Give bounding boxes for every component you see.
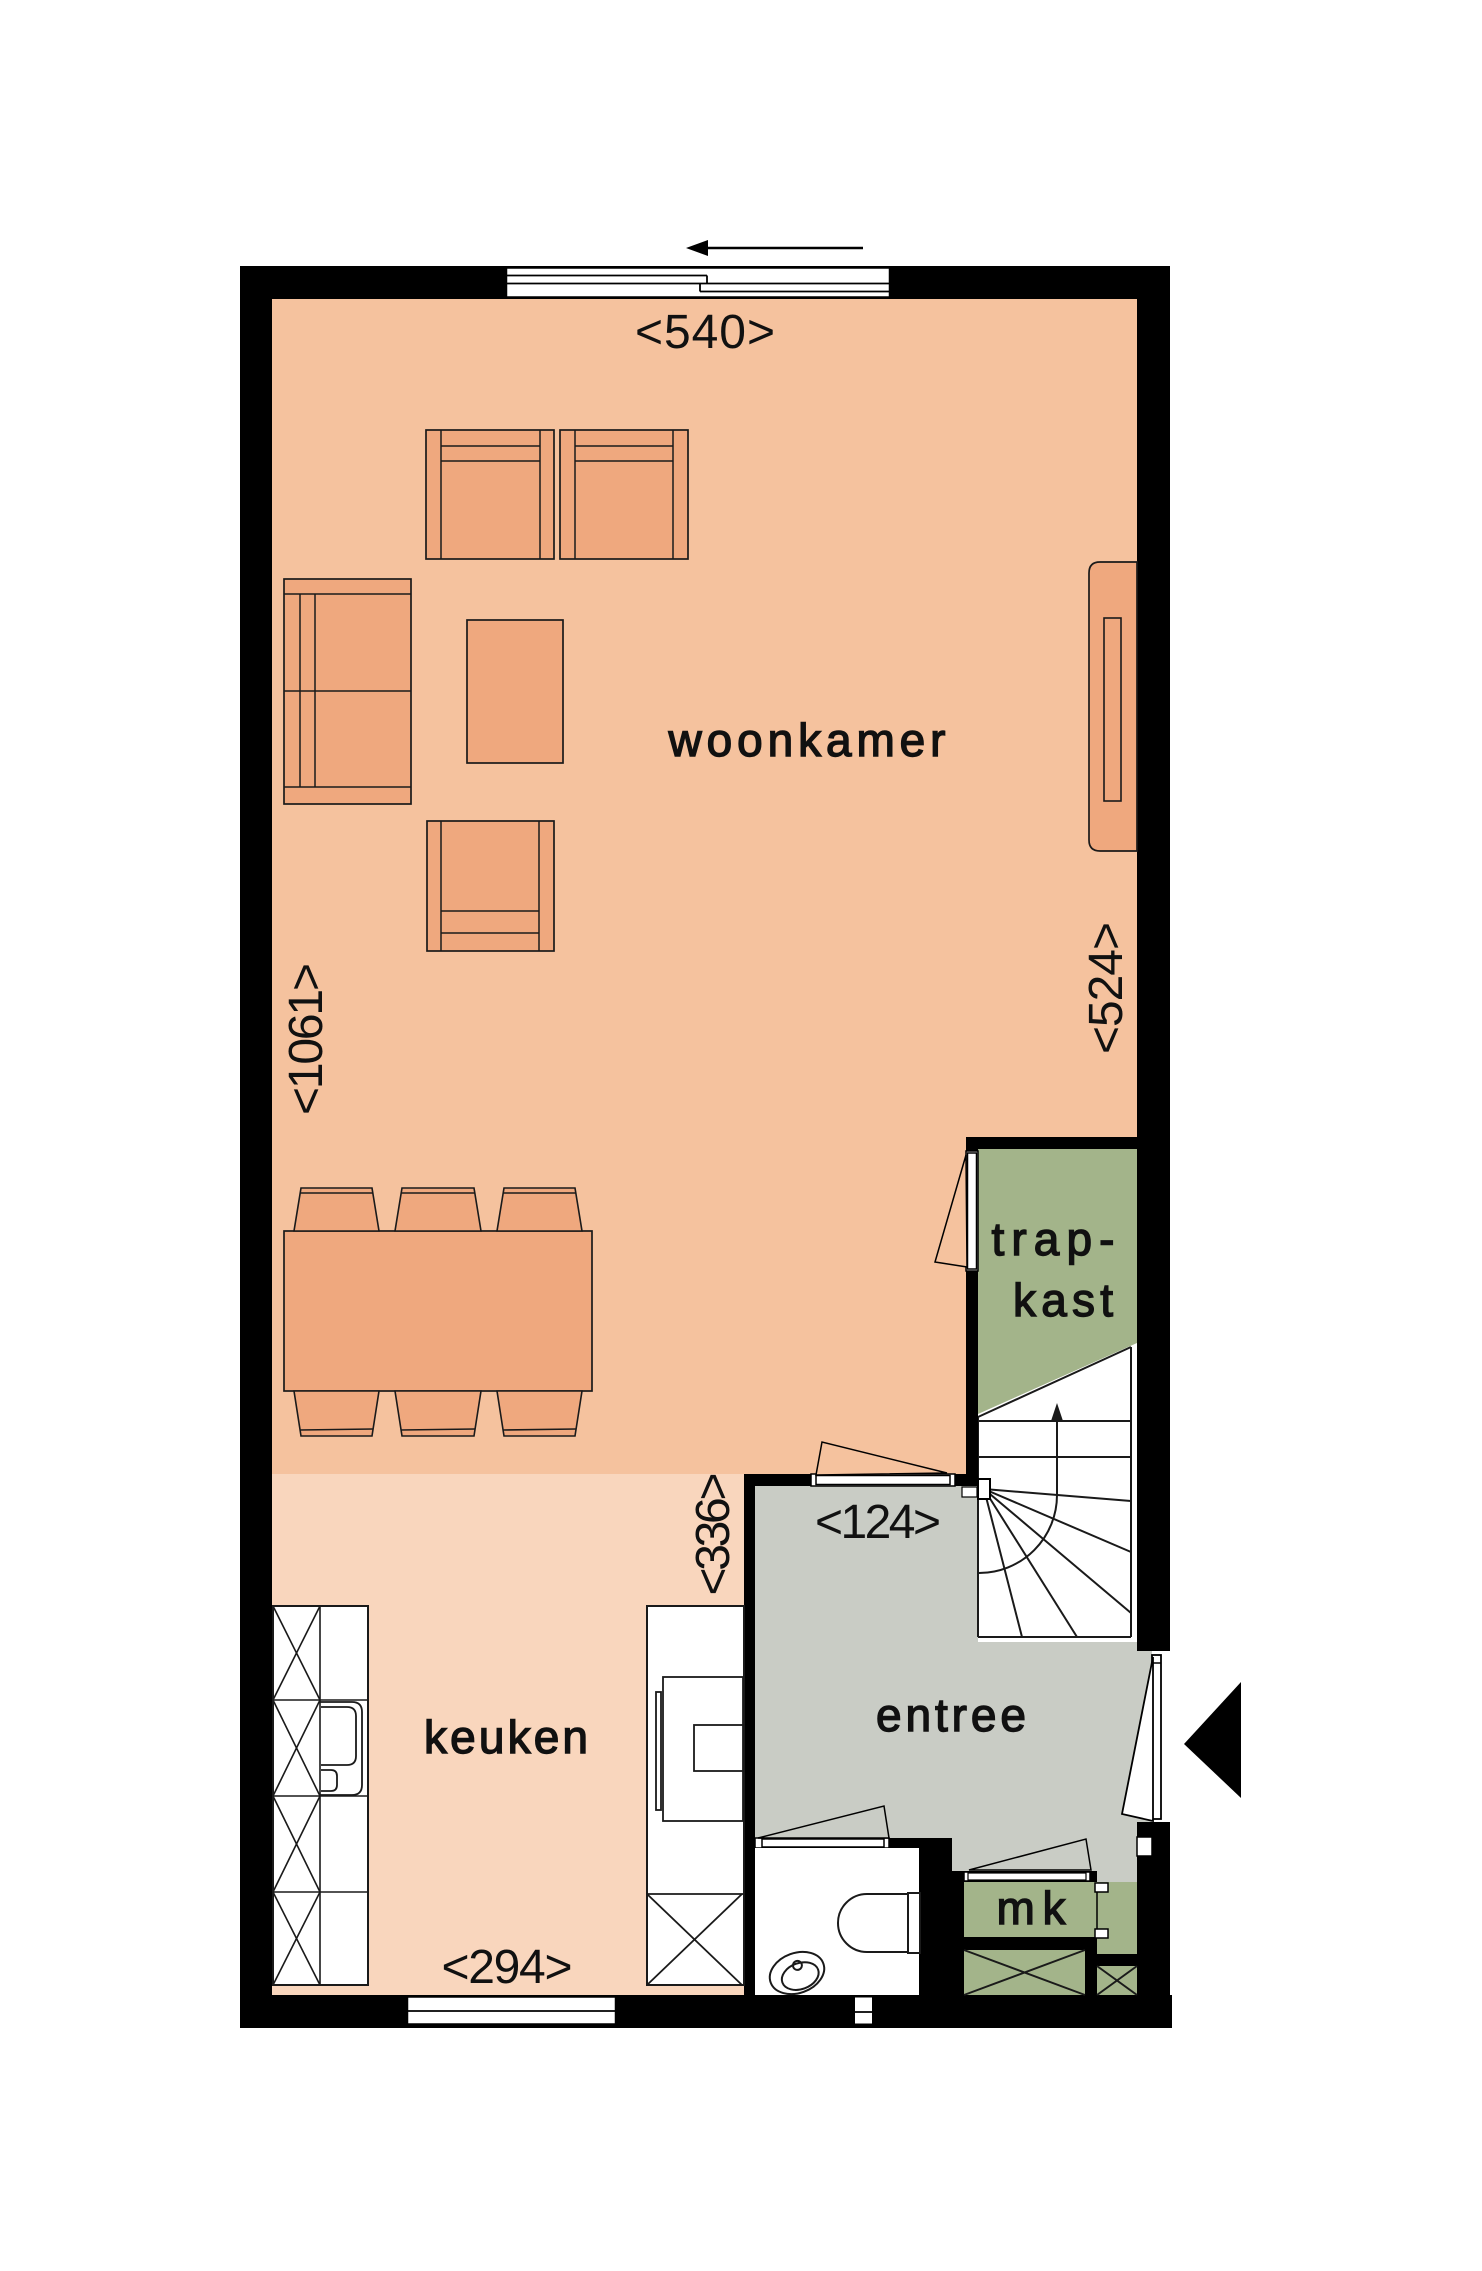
svg-text:<540>: <540> <box>635 306 775 359</box>
svg-text:entree: entree <box>876 1689 1026 1741</box>
svg-text:<294>: <294> <box>442 1941 573 1994</box>
svg-text:<124>: <124> <box>815 1496 941 1549</box>
svg-text:<336>: <336> <box>687 1473 740 1596</box>
svg-text:woonkamer: woonkamer <box>668 714 946 766</box>
svg-text:<1061>: <1061> <box>280 963 333 1115</box>
svg-text:mk: mk <box>997 1882 1067 1934</box>
svg-text:<524>: <524> <box>1080 922 1133 1054</box>
